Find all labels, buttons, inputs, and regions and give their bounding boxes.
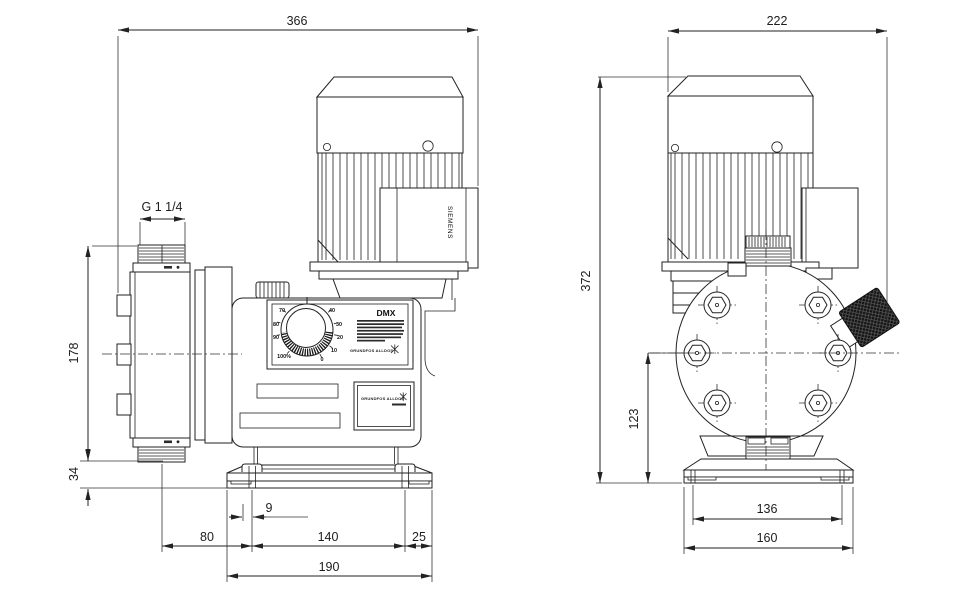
dim-label-222: 222 bbox=[767, 14, 788, 28]
panel-logo-text: GRUNDFOS ALLDOS bbox=[350, 348, 393, 353]
base-plate-lower bbox=[227, 481, 432, 488]
suction-thread bbox=[138, 447, 185, 462]
fan-cover-screw bbox=[671, 144, 678, 151]
discharge-collar bbox=[133, 263, 190, 272]
dial-scale-30: 30 bbox=[336, 322, 342, 328]
dial-scale-100: 100% bbox=[277, 354, 291, 360]
motor-fan-cover-body bbox=[668, 96, 813, 153]
base-notch bbox=[688, 477, 716, 480]
dial-scale-40: 40 bbox=[329, 308, 335, 314]
dim-base-width-front: 160 bbox=[684, 487, 853, 554]
dmx-pump-dimensional-drawing: SIEMENS bbox=[0, 0, 976, 600]
dial-cap bbox=[287, 309, 326, 348]
fan-cover-screw bbox=[323, 143, 330, 150]
dial-scale-70: 70 bbox=[279, 308, 285, 314]
dim-thread-size: G 1 1/4 bbox=[140, 200, 185, 245]
priming-knob bbox=[256, 282, 289, 298]
connection-bracket bbox=[728, 263, 746, 276]
foot-tab bbox=[395, 464, 415, 472]
housing-vent-slot bbox=[257, 384, 338, 398]
model-label: DMX bbox=[377, 308, 396, 318]
dim-foot-to-edge: 25 bbox=[405, 490, 432, 582]
base-notch bbox=[821, 477, 849, 480]
dim-label-34: 34 bbox=[67, 467, 81, 481]
fan-cover-screw bbox=[772, 142, 782, 152]
motor-flange-lower bbox=[319, 271, 458, 279]
pedestal bbox=[684, 459, 853, 470]
head-body bbox=[130, 272, 190, 438]
collar-mark bbox=[177, 440, 180, 443]
side-view: SIEMENS bbox=[67, 14, 478, 582]
dim-label-g114: G 1 1/4 bbox=[142, 200, 183, 214]
dim-label-136: 136 bbox=[757, 502, 778, 516]
pedestal-columns bbox=[254, 447, 398, 464]
dial-scale-90: 90 bbox=[273, 335, 279, 341]
housing-vent-slot bbox=[240, 413, 340, 428]
motor-flange bbox=[310, 262, 468, 271]
motor-brand-label: SIEMENS bbox=[446, 206, 453, 239]
motor-fin-housing bbox=[668, 153, 813, 262]
collar-mark bbox=[164, 441, 172, 444]
base-plate bbox=[684, 470, 853, 477]
motor: SIEMENS bbox=[310, 77, 478, 298]
terminal-box bbox=[380, 188, 478, 268]
dial-scale-80: 80 bbox=[273, 322, 279, 328]
suction-collar bbox=[133, 438, 190, 447]
dial-scale-0: 0 bbox=[321, 357, 324, 363]
head-backplate bbox=[195, 270, 205, 440]
collar-mark bbox=[177, 266, 180, 269]
gear-housing: 0 10 20 30 40 70 80 90 100% DMX bbox=[232, 279, 455, 447]
base-notch bbox=[409, 481, 429, 484]
nameplate: GRUNDFOS ALLDOS bbox=[354, 382, 414, 430]
pump-base bbox=[227, 447, 432, 488]
collar-mark bbox=[164, 266, 172, 269]
dial-scale-10: 10 bbox=[331, 348, 337, 354]
motor-fan-cover bbox=[317, 77, 463, 97]
dim-center-to-base: 123 bbox=[627, 353, 686, 483]
dim-foot-spacing: 140 bbox=[252, 490, 405, 552]
front-base bbox=[684, 436, 853, 483]
motor-bell bbox=[333, 279, 446, 298]
base-notch bbox=[231, 481, 251, 484]
thread-ridges bbox=[139, 245, 184, 263]
motor-fan-cover bbox=[668, 76, 813, 96]
dim-label-123: 123 bbox=[627, 409, 641, 430]
dim-label-9: 9 bbox=[266, 501, 273, 515]
front-view: 222 372 123 136 bbox=[579, 14, 902, 554]
dim-label-25: 25 bbox=[412, 530, 426, 544]
dim-label-160: 160 bbox=[757, 531, 778, 545]
technical-drawing-page: SIEMENS bbox=[0, 0, 976, 600]
foot-tab bbox=[242, 464, 262, 472]
control-panel: 0 10 20 30 40 70 80 90 100% DMX bbox=[267, 297, 413, 369]
head-adapter bbox=[205, 267, 232, 443]
dim-label-372: 372 bbox=[579, 271, 593, 292]
fan-cover-screw bbox=[423, 141, 433, 151]
dial-scale-20: 20 bbox=[337, 335, 343, 341]
terminal-box bbox=[802, 188, 858, 268]
dim-label-140: 140 bbox=[318, 530, 339, 544]
suction-connection bbox=[746, 437, 790, 462]
dim-label-190: 190 bbox=[319, 560, 340, 574]
nameplate-logo-text: GRUNDFOS ALLDOS bbox=[361, 396, 404, 401]
motor-fan-cover-body bbox=[317, 97, 463, 153]
head-valve-tabs bbox=[117, 295, 131, 415]
base-plate bbox=[227, 473, 432, 481]
dim-slot-offset: 9 bbox=[229, 490, 308, 552]
dim-label-366: 366 bbox=[287, 14, 308, 28]
dim-foot-spacing-front: 136 bbox=[693, 485, 842, 525]
dim-label-178: 178 bbox=[67, 343, 81, 364]
dosing-head bbox=[102, 245, 242, 462]
dim-label-80: 80 bbox=[200, 530, 214, 544]
